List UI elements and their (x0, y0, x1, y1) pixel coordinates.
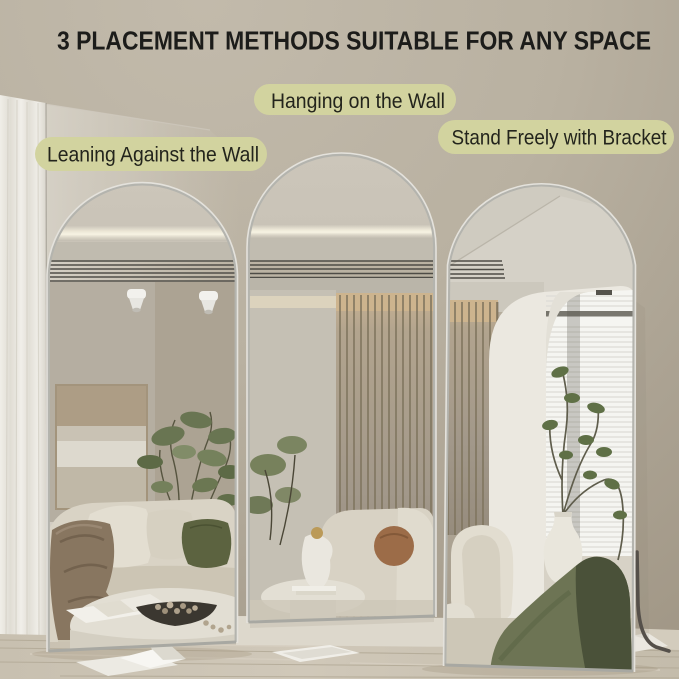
svg-text:Leaning Against the Wall: Leaning Against the Wall (47, 144, 259, 167)
svg-text:3 PLACEMENT METHODS SUITABLE F: 3 PLACEMENT METHODS SUITABLE FOR ANY SPA… (57, 28, 651, 56)
svg-text:Hanging on the Wall: Hanging on the Wall (271, 90, 445, 113)
svg-text:Stand Freely with Bracket: Stand Freely with Bracket (452, 127, 667, 150)
